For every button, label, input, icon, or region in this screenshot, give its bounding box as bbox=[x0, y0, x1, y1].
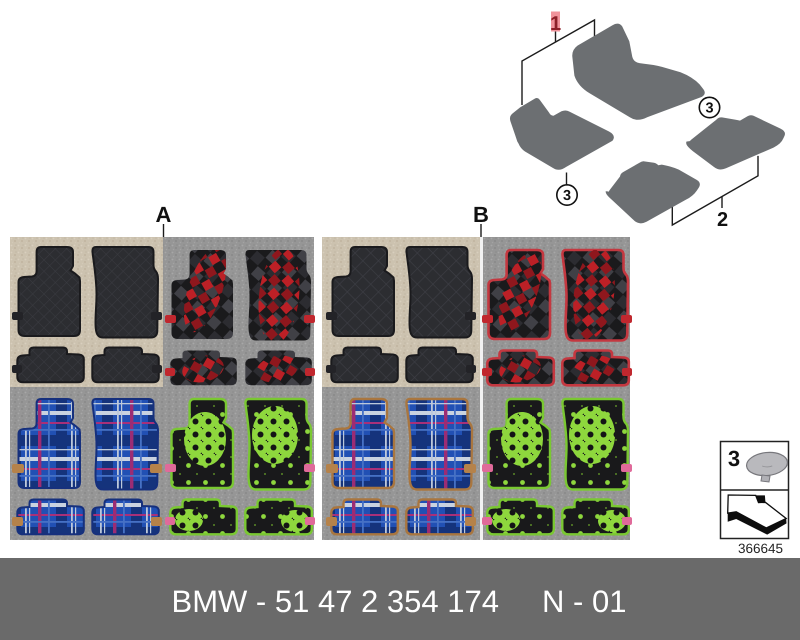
svg-text:366645: 366645 bbox=[738, 541, 783, 556]
svg-text:2: 2 bbox=[717, 209, 728, 231]
svg-text:A: A bbox=[156, 202, 172, 227]
svg-text:BMW - 51 47 2 354 174 N -: BMW - 51 47 2 354 174 N - 01 bbox=[172, 584, 627, 619]
svg-text:1: 1 bbox=[550, 13, 561, 35]
svg-text:3: 3 bbox=[563, 188, 571, 204]
svg-text:3: 3 bbox=[728, 446, 740, 471]
svg-text:B: B bbox=[473, 202, 489, 227]
svg-text:3: 3 bbox=[705, 101, 713, 117]
